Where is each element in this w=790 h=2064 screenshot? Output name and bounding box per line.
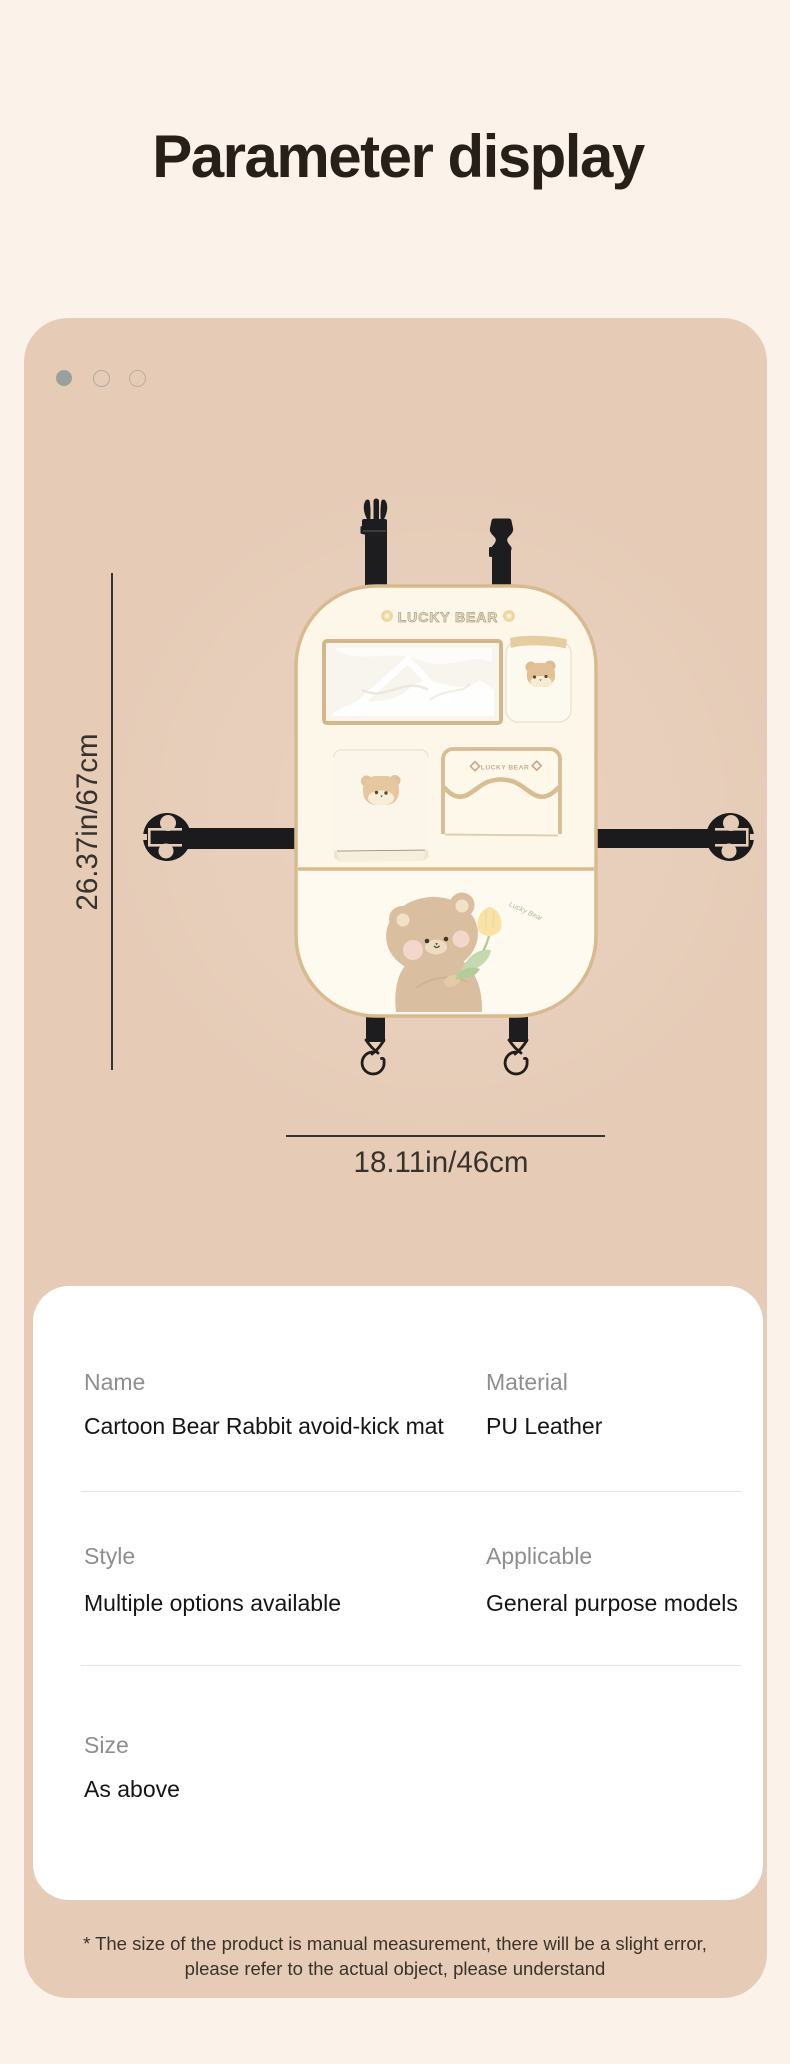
svg-text:LUCKY BEAR: LUCKY BEAR bbox=[481, 765, 529, 772]
svg-text:18.11in/46cm: 18.11in/46cm bbox=[354, 1146, 529, 1179]
svg-text:LUCKY BEAR: LUCKY BEAR bbox=[398, 609, 499, 625]
svg-text:26.37in/67cm: 26.37in/67cm bbox=[71, 733, 104, 910]
